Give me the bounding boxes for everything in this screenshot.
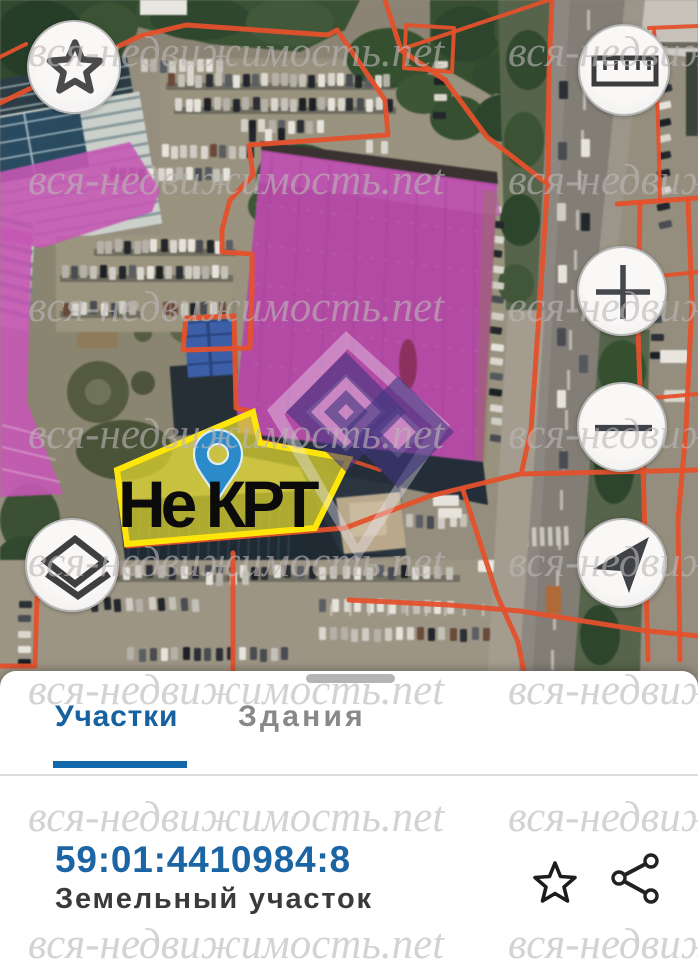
svg-text:Не КРТ: Не КРТ [118, 467, 319, 541]
